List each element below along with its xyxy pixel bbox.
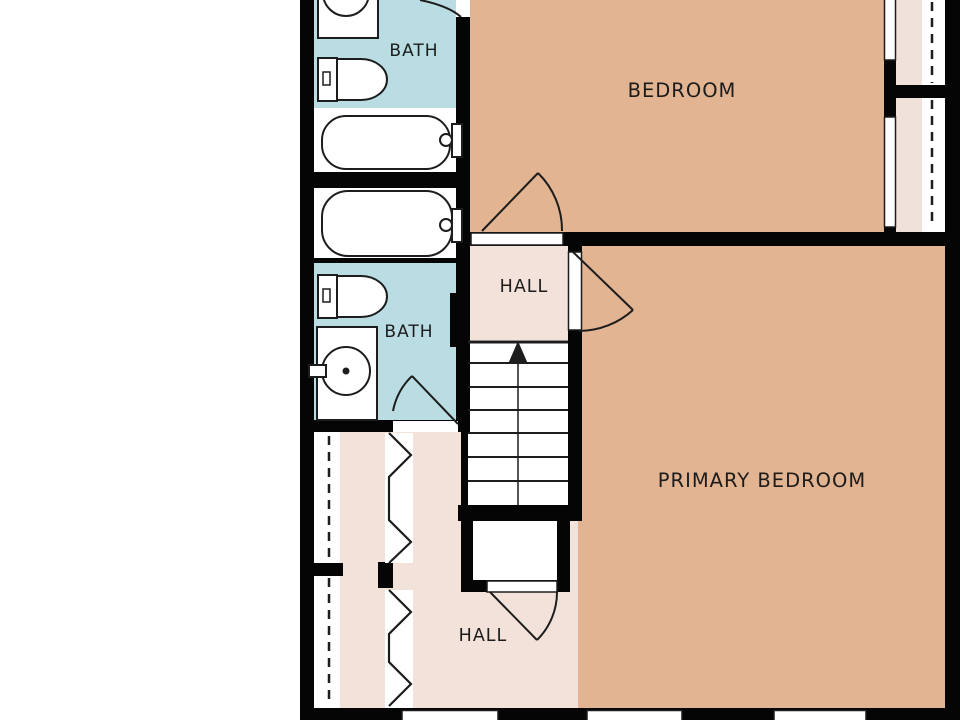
toilet-bowl-upper [337,59,387,100]
wall-tub-divider [313,258,456,263]
door-gap-bath-lower [393,421,458,432]
label-hall-upper: HALL [500,277,549,297]
toilet-button-upper [323,72,330,85]
window-bottom-2 [587,711,682,720]
window-bottom-1 [402,711,498,720]
sink-drain-lower [343,368,350,375]
window-bedroom-2 [885,117,896,227]
toilet-button-lower [323,289,330,302]
toilet-bowl-lower [337,276,387,317]
label-bedroom: BEDROOM [628,79,737,102]
sink-faucet-lower [309,365,326,377]
window-bedroom-1 [885,0,896,60]
label-bath-upper: BATH [389,41,438,61]
wall-closet-divider [300,563,343,576]
label-bath-lower: BATH [384,322,433,342]
window-bottom-3 [774,711,866,720]
label-primary-bedroom: PRIMARY BEDROOM [658,469,866,492]
floor-plan-canvas: BATH BATH BEDROOM HALL PRIMARY BEDROOM H… [0,0,960,720]
tub-faucet-bar-lower [452,209,462,242]
door-threshold-primary [569,252,582,330]
bedroom-closet-inner-strip [922,0,945,232]
tub-faucet-bar-upper [452,124,462,157]
wall-bath-divider [300,172,470,188]
understair-closet-floor [473,521,557,580]
tub-faucet-knob-upper [440,134,452,146]
tub-faucet-knob-lower [440,219,452,231]
wall-plumbing-chunk [450,293,470,347]
wall-stairs-right [568,340,582,507]
wall-understair-band [458,505,582,521]
bathtub-lower [322,191,452,256]
room-bedroom [470,0,884,232]
wall-stair-left [461,432,468,507]
door-threshold-bedroom [471,233,563,245]
door-threshold-understair [487,581,557,592]
floor-plan: BATH BATH BEDROOM HALL PRIMARY BEDROOM H… [0,0,960,720]
wall-left [300,0,314,720]
label-hall-lower: HALL [459,626,508,646]
bathtub-upper [322,116,450,169]
wall-right [945,0,960,720]
wall-closet-divider-block [378,562,393,588]
